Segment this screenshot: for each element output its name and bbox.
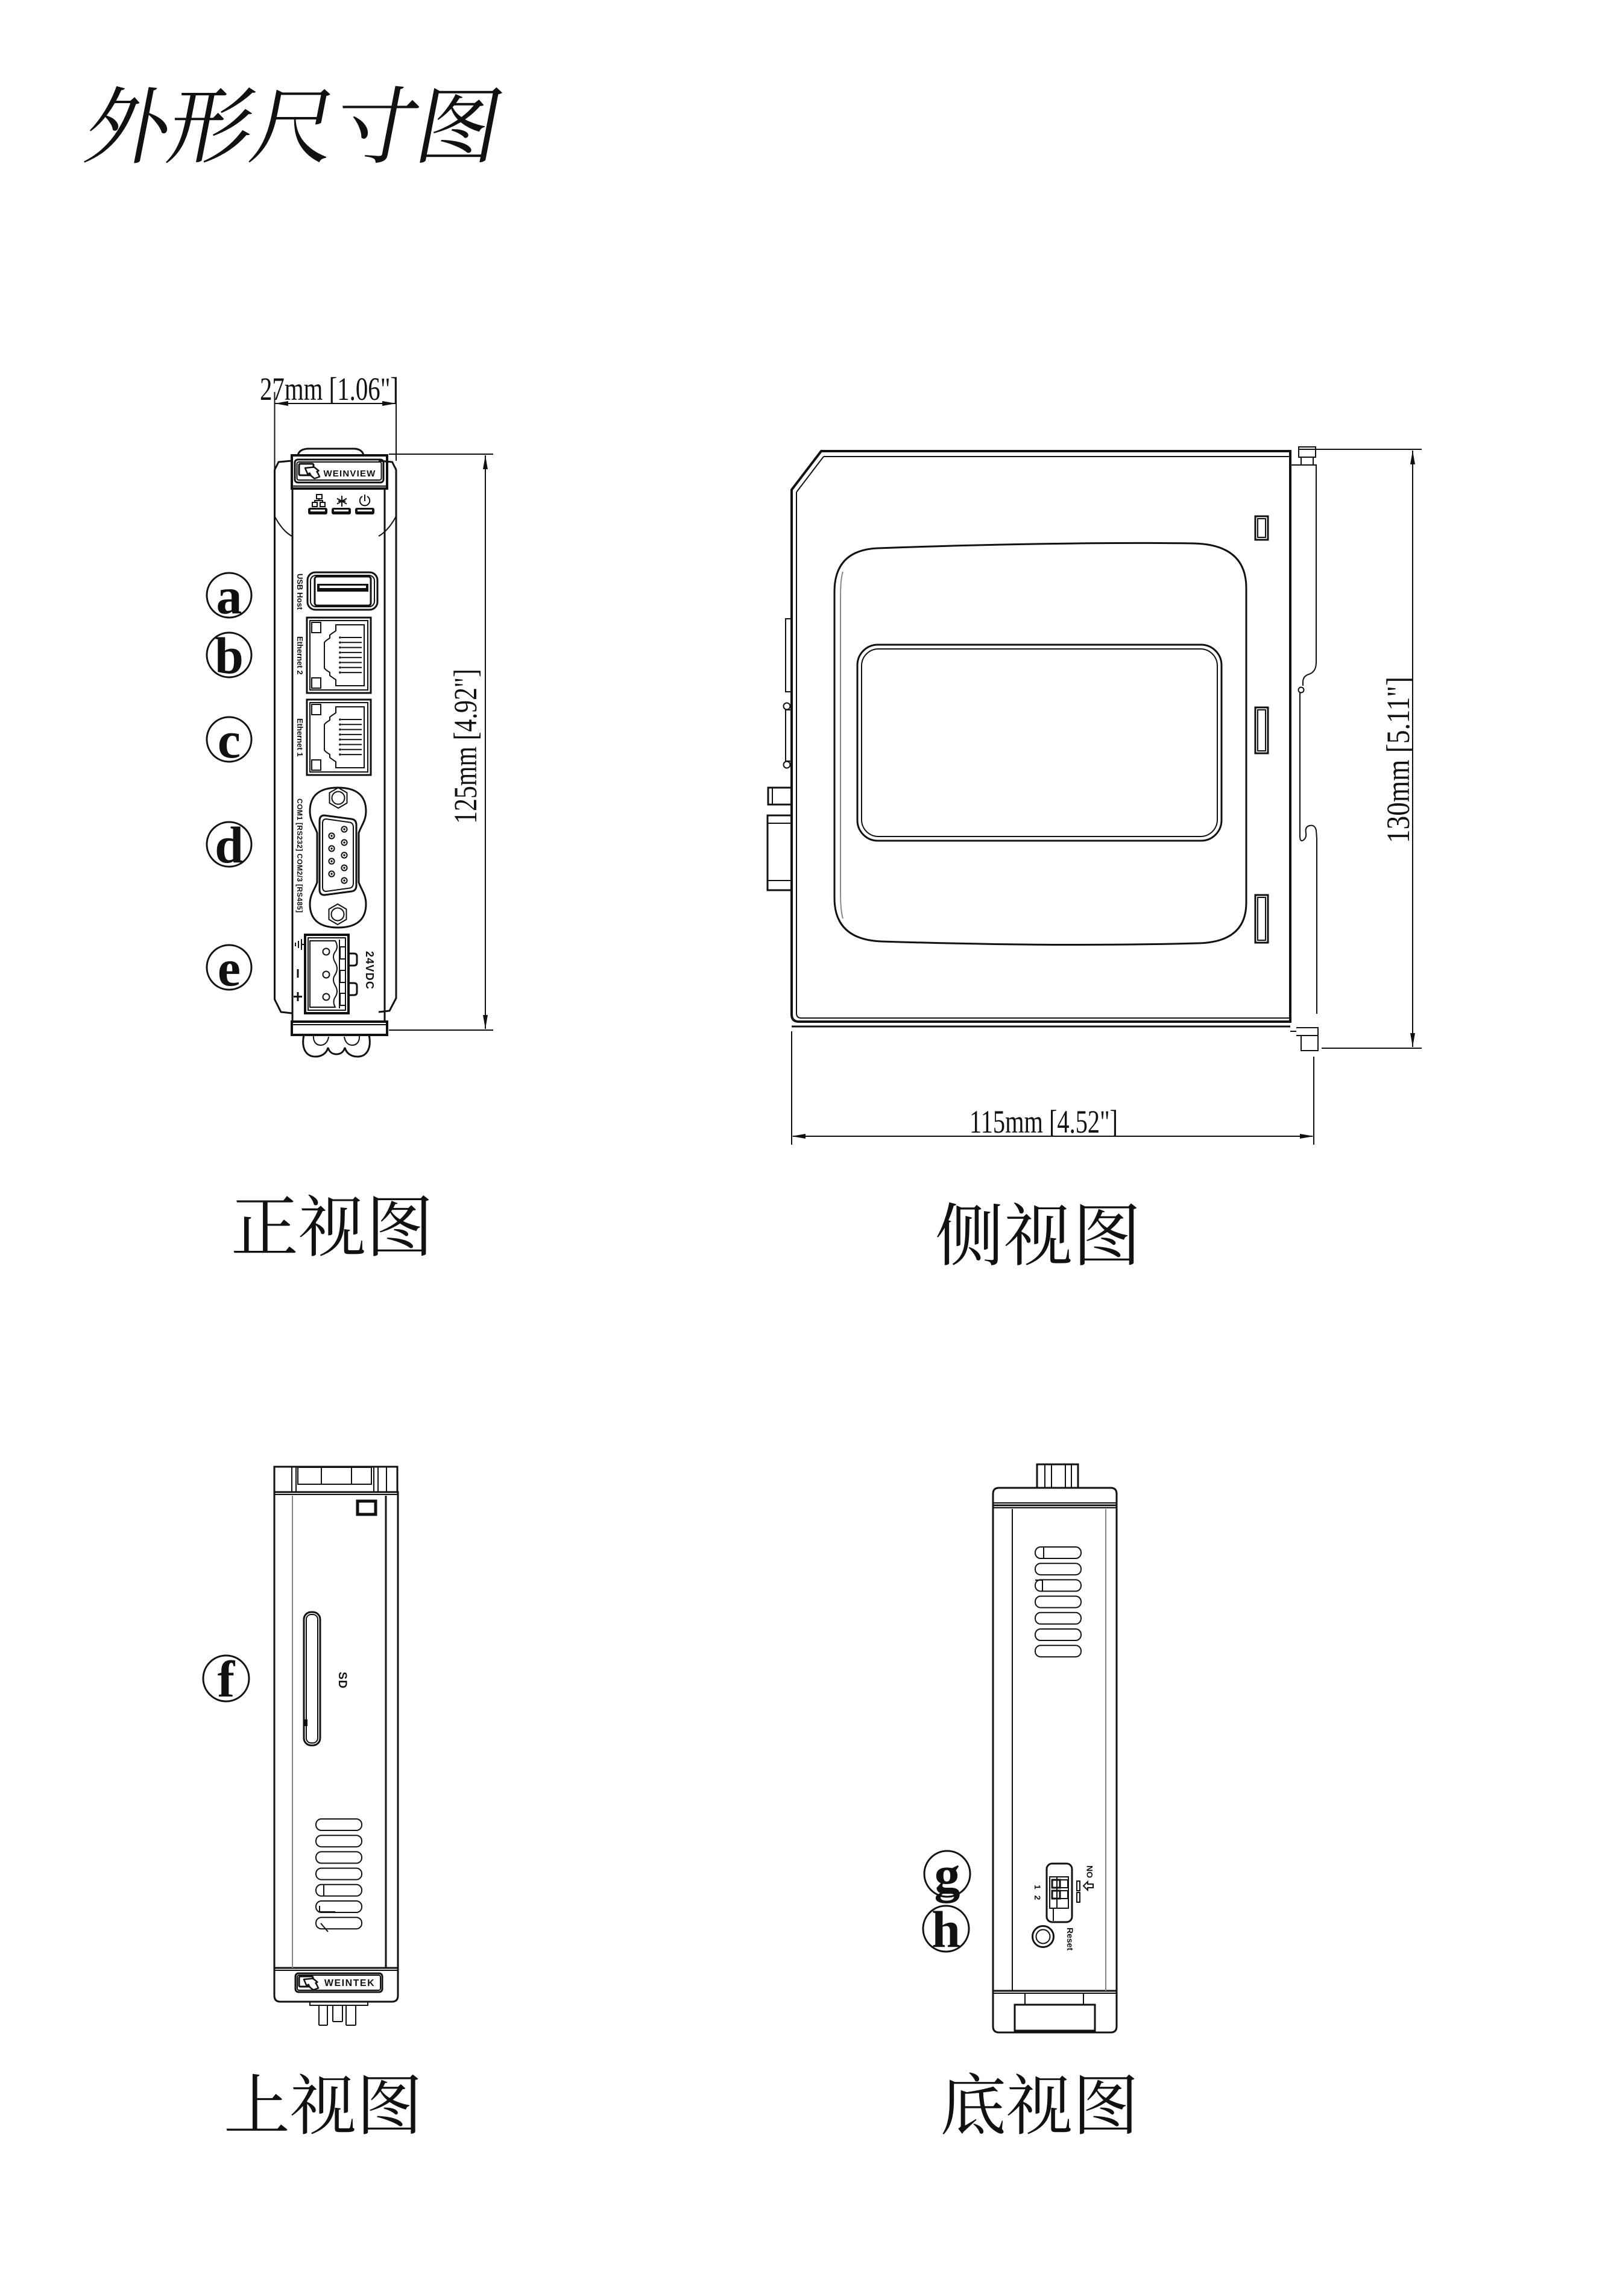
svg-text:COM1 [RS232] COM2/3 [RS485]: COM1 [RS232] COM2/3 [RS485]: [295, 799, 304, 913]
svg-text:WEINVIEW: WEINVIEW: [323, 469, 376, 479]
svg-text:Ethernet 1: Ethernet 1: [295, 718, 304, 757]
svg-text:ON: ON: [1085, 1865, 1094, 1878]
svg-text:125mm [4.92"]: 125mm [4.92"]: [447, 669, 484, 824]
svg-text:Ethernet 2: Ethernet 2: [295, 636, 304, 675]
svg-text:f: f: [218, 1650, 236, 1708]
svg-text:24VDC: 24VDC: [364, 951, 376, 990]
svg-text:130mm [5.11"]: 130mm [5.11"]: [1380, 677, 1416, 843]
svg-text:d: d: [215, 816, 244, 874]
svg-text:27mm [1.06"]: 27mm [1.06"]: [260, 371, 399, 407]
svg-text:e: e: [218, 939, 241, 997]
svg-text:115mm [4.52"]: 115mm [4.52"]: [970, 1104, 1118, 1140]
svg-text:a: a: [216, 567, 242, 625]
svg-text:c: c: [218, 711, 241, 769]
svg-text:g: g: [935, 1845, 960, 1903]
svg-text:h: h: [932, 1900, 960, 1958]
svg-text:Reset: Reset: [1065, 1928, 1075, 1950]
svg-text:SD: SD: [336, 1672, 348, 1689]
svg-text:WEINTEK: WEINTEK: [324, 1978, 375, 1988]
svg-text:b: b: [215, 627, 244, 685]
svg-text:1 2: 1 2: [1033, 1885, 1042, 1902]
svg-text:USB Host: USB Host: [295, 574, 304, 610]
